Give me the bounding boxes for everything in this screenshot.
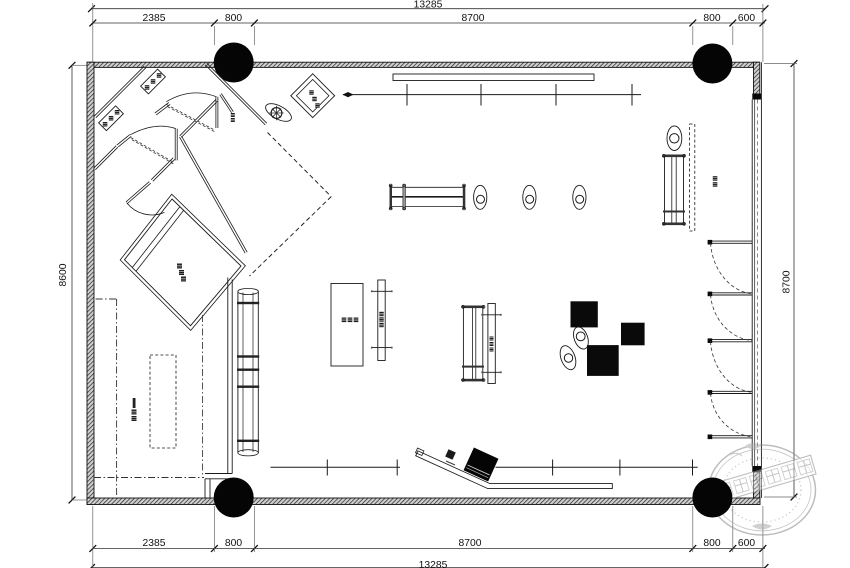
svg-text:8600: 8600 — [58, 263, 69, 286]
svg-text:800: 800 — [703, 13, 720, 24]
svg-text:8700: 8700 — [462, 13, 485, 24]
svg-text:13285: 13285 — [419, 560, 448, 568]
svg-text:8700: 8700 — [459, 538, 482, 549]
svg-text:800: 800 — [225, 538, 242, 549]
svg-text:8700: 8700 — [782, 270, 793, 293]
svg-text:13285: 13285 — [414, 0, 443, 11]
svg-text:2385: 2385 — [143, 538, 166, 549]
svg-text:600: 600 — [738, 13, 755, 24]
svg-text:2385: 2385 — [143, 13, 166, 24]
svg-text:800: 800 — [225, 13, 242, 24]
svg-text:600: 600 — [738, 538, 755, 549]
svg-text:800: 800 — [703, 538, 720, 549]
